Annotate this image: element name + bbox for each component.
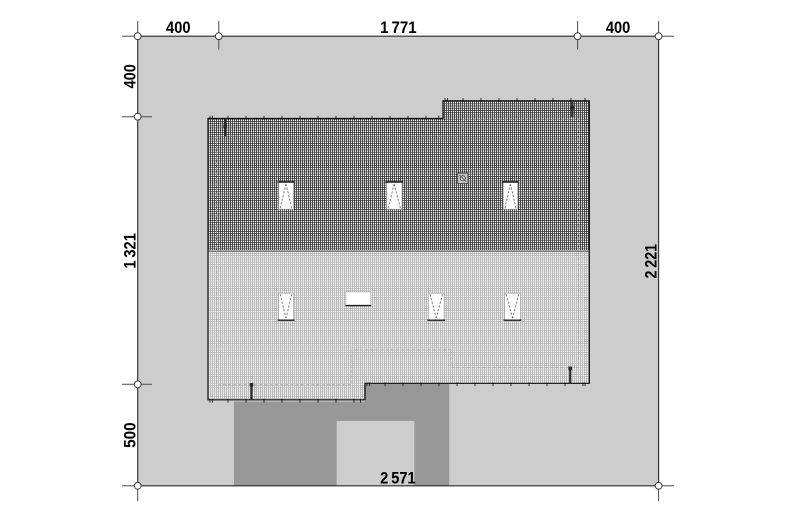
svg-text:1 321: 1 321 [120,233,139,269]
svg-text:400: 400 [120,64,139,89]
svg-text:400: 400 [166,18,191,37]
svg-text:500: 500 [120,422,139,448]
svg-text:400: 400 [606,18,631,37]
svg-text:2 221: 2 221 [641,244,660,279]
svg-text:2 571: 2 571 [380,469,416,488]
svg-text:1 771: 1 771 [380,18,417,37]
